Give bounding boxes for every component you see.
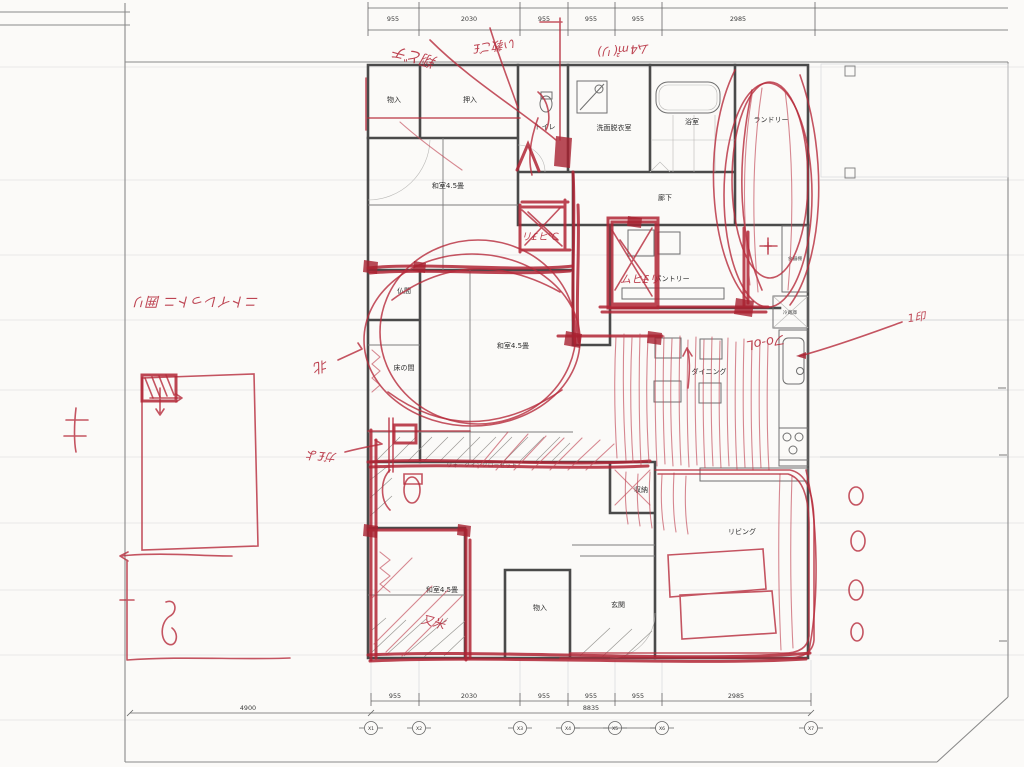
handwritten-note-6: ムヒ£リ bbox=[620, 273, 660, 286]
axis-x2: X2 bbox=[407, 722, 431, 735]
dimension-strip-bottom: 955 2030 955 955 955 2985 4900 8835 X1 X… bbox=[127, 660, 823, 735]
red-closet-box bbox=[517, 18, 572, 252]
sheet-frame-rect bbox=[821, 64, 1008, 177]
room-label-washitsu-top: 和室4.5畳 bbox=[432, 181, 464, 190]
red-living-outline bbox=[560, 470, 816, 658]
room-label-toilet: トイレ bbox=[535, 123, 556, 131]
svg-text:X3: X3 bbox=[517, 726, 523, 732]
dim-bot-3: 955 bbox=[538, 692, 550, 700]
kitchen-counter bbox=[779, 330, 808, 466]
dim-bot-1: 955 bbox=[389, 692, 401, 700]
dim-top-4: 955 bbox=[585, 15, 597, 23]
red-washroom-box bbox=[608, 218, 658, 308]
dim-top-1: 955 bbox=[387, 15, 399, 23]
column-marker-top bbox=[845, 66, 855, 76]
room-label-dining: ダイニング bbox=[692, 367, 727, 376]
handwritten-note-3: ム4㎡(リ) bbox=[596, 41, 650, 59]
handwritten-note-8: + bbox=[763, 239, 773, 253]
room-label-living: リビング bbox=[728, 527, 756, 536]
grid-axis-bubbles: X1 X2 X3 X4 X5 X6 X7 bbox=[359, 722, 823, 735]
axis-x7: X7 bbox=[799, 722, 823, 735]
dim-bot-2: 2030 bbox=[461, 692, 477, 700]
dim-top-5: 955 bbox=[632, 15, 644, 23]
room-label-bath: 浴室 bbox=[685, 117, 699, 126]
svg-text:X6: X6 bbox=[659, 726, 665, 732]
svg-text:X4: X4 bbox=[565, 726, 571, 732]
room-label-senmen: 洗面脱衣室 bbox=[597, 123, 632, 132]
room-label-tokonoma: 床の間 bbox=[394, 363, 415, 372]
axis-x5: X5 bbox=[603, 722, 627, 735]
red-margin-sketch bbox=[64, 374, 290, 660]
red-circle-doodles bbox=[849, 487, 865, 641]
handwritten-note-north: 北 bbox=[310, 356, 330, 376]
red-toilet-sketch bbox=[372, 350, 422, 592]
dim-top-6: 2985 bbox=[730, 15, 746, 23]
axis-x3: X3 bbox=[508, 722, 532, 735]
stove-icon bbox=[779, 428, 808, 460]
dim-bot-6: 2985 bbox=[728, 692, 744, 700]
dim-bot-5: 955 bbox=[632, 692, 644, 700]
handwritten-note-7: フo-oL bbox=[745, 331, 788, 353]
room-label-washitsu-bottom: 和室4.5畳 bbox=[426, 585, 458, 594]
svg-text:X5: X5 bbox=[612, 726, 618, 732]
room-label-monoire-bottom: 物入 bbox=[533, 603, 547, 612]
handwritten-note-4: ニトイレっトニ 囲リ bbox=[133, 293, 259, 309]
washing-machine-icon bbox=[577, 81, 607, 113]
handwritten-note-5: リ£ヒ℃ bbox=[521, 232, 559, 243]
dim-left-total: 4900 bbox=[240, 704, 256, 712]
handwritten-note-12: 又米 bbox=[420, 612, 449, 632]
red-laundry-ovals bbox=[713, 70, 818, 307]
axis-x1: X1 bbox=[359, 722, 383, 735]
axis-x6: X6 bbox=[650, 722, 674, 735]
room-label-washitsu-center: 和室4.5畳 bbox=[497, 341, 529, 350]
dim-top-2: 2030 bbox=[461, 15, 477, 23]
room-label-oshiire: 押入 bbox=[463, 95, 477, 104]
handwritten-note-11: 1印 bbox=[907, 310, 929, 326]
dim-bot-4: 955 bbox=[585, 692, 597, 700]
floor-plan-canvas: 955 2030 955 955 955 2985 955 2030 955 9… bbox=[0, 0, 1024, 767]
svg-text:X1: X1 bbox=[368, 726, 374, 732]
column-marker-bottom bbox=[845, 168, 855, 178]
room-label-genkan: 玄関 bbox=[611, 600, 625, 609]
red-pen-overlay: 翔どチ い教ご£ ム4㎡(リ) ニトイレっトニ 囲リ リ£ヒ℃ ムヒ£リ フo-… bbox=[64, 18, 928, 661]
scanned-floor-plan-page: 955 2030 955 955 955 2985 955 2030 955 9… bbox=[0, 0, 1024, 767]
room-label-fridge: 冷蔵庫 bbox=[783, 309, 798, 316]
svg-text:X7: X7 bbox=[808, 726, 814, 732]
svg-text:X2: X2 bbox=[416, 726, 422, 732]
room-label-monoire-top: 物入 bbox=[387, 95, 401, 104]
handwritten-note-10: ガ£よ bbox=[305, 448, 338, 465]
bathtub-icon bbox=[652, 82, 735, 172]
axis-x4: X4 bbox=[556, 722, 580, 735]
dimension-strip-top: 955 2030 955 955 955 2985 bbox=[368, 2, 1008, 36]
dim-bottom-total: 8835 bbox=[583, 704, 599, 712]
handwritten-note-2: い教ご£ bbox=[472, 36, 518, 56]
room-label-rouka: 廊下 bbox=[658, 193, 672, 202]
house-walls bbox=[368, 65, 808, 658]
room-label-shuno: 収納 bbox=[634, 485, 648, 494]
